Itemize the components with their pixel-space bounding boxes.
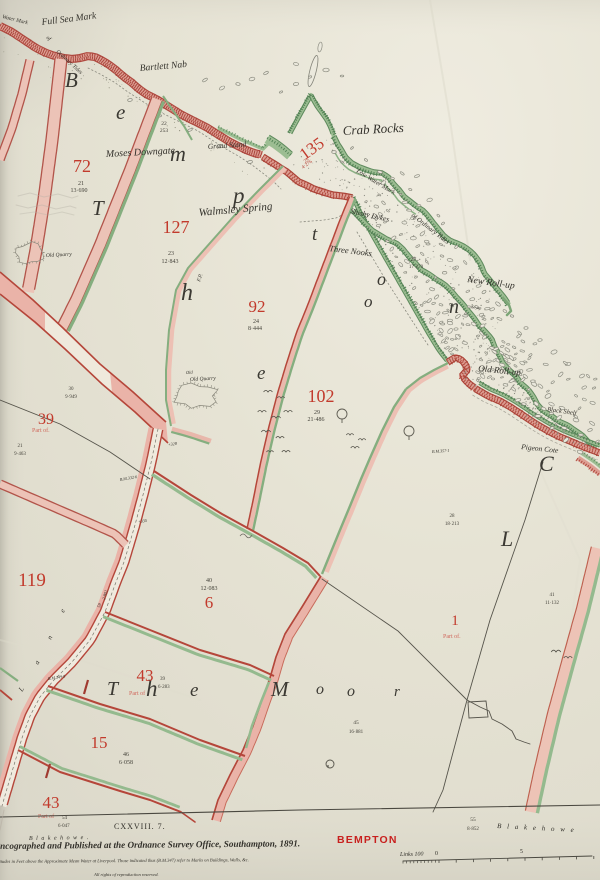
svg-text:8·852: 8·852 <box>467 827 479 832</box>
svg-text:1: 1 <box>451 613 459 629</box>
svg-text:h: h <box>181 280 193 306</box>
svg-text:o: o <box>377 269 386 289</box>
svg-text:6·047: 6·047 <box>58 824 70 829</box>
svg-text:12·843: 12·843 <box>162 259 179 265</box>
svg-text:n: n <box>449 296 459 318</box>
svg-text:All rights of reproduction res: All rights of reproduction reserved. <box>93 872 159 877</box>
svg-text:46: 46 <box>123 752 129 758</box>
svg-text:T: T <box>107 678 120 700</box>
svg-text:24: 24 <box>253 319 259 325</box>
svg-text:T: T <box>92 196 105 220</box>
svg-text:15: 15 <box>91 733 108 752</box>
svg-text:o: o <box>364 292 373 311</box>
svg-text:8·444: 8·444 <box>248 326 262 332</box>
svg-text:Links 100: Links 100 <box>399 852 424 858</box>
svg-text:CXXVIII. 7.: CXXVIII. 7. <box>114 822 166 831</box>
svg-text:102: 102 <box>308 386 335 406</box>
svg-text:21: 21 <box>18 444 24 449</box>
svg-text:6·058: 6·058 <box>119 760 133 766</box>
svg-text:30: 30 <box>69 387 75 392</box>
svg-text:12·083: 12·083 <box>201 586 218 592</box>
svg-text:17·270: 17·270 <box>409 265 424 270</box>
svg-text:39: 39 <box>38 411 54 428</box>
svg-text:23: 23 <box>168 251 174 257</box>
svg-text:5: 5 <box>520 849 523 855</box>
svg-text:0: 0 <box>435 851 438 857</box>
svg-text:9·949: 9·949 <box>65 395 77 400</box>
svg-text:127: 127 <box>163 217 190 237</box>
svg-text:22: 22 <box>161 121 167 127</box>
svg-text:t: t <box>312 224 318 245</box>
svg-text:45: 45 <box>353 720 359 726</box>
svg-text:43: 43 <box>137 666 154 685</box>
svg-text:13·690: 13·690 <box>71 188 88 194</box>
svg-text:21·486: 21·486 <box>308 417 325 423</box>
svg-text:16·881: 16·881 <box>349 730 364 735</box>
svg-text:72: 72 <box>73 156 91 176</box>
svg-text:C: C <box>539 451 554 476</box>
svg-text:e: e <box>190 680 198 701</box>
svg-text:253: 253 <box>160 128 169 134</box>
svg-text:6·283: 6·283 <box>158 685 170 690</box>
svg-text:r: r <box>394 684 400 700</box>
svg-text:40: 40 <box>206 578 212 584</box>
svg-text:o: o <box>316 681 324 698</box>
svg-text:39: 39 <box>160 677 166 682</box>
svg-text:21: 21 <box>78 181 84 187</box>
svg-text:B: B <box>65 68 78 92</box>
svg-text:m: m <box>170 141 186 166</box>
svg-text:29: 29 <box>314 410 320 416</box>
svg-text:119: 119 <box>18 570 46 591</box>
svg-text:L: L <box>500 526 513 551</box>
svg-text:e: e <box>116 100 125 124</box>
svg-text:Crab Rocks: Crab Rocks <box>342 120 404 138</box>
svg-text:o: o <box>347 683 355 700</box>
svg-text:92: 92 <box>249 297 266 316</box>
svg-text:6: 6 <box>205 593 214 612</box>
svg-text:43: 43 <box>43 793 60 812</box>
svg-text:p: p <box>231 183 245 208</box>
svg-text:9·463: 9·463 <box>14 452 26 457</box>
svg-text:55: 55 <box>470 817 476 823</box>
svg-text:11·132: 11·132 <box>545 601 559 606</box>
svg-text:Part of.: Part of. <box>443 633 461 640</box>
svg-text:18·213: 18·213 <box>445 522 460 527</box>
svg-text:25: 25 <box>411 258 417 263</box>
svg-text:Old: Old <box>186 370 194 375</box>
svg-text:54: 54 <box>62 816 68 821</box>
svg-text:28: 28 <box>450 514 456 519</box>
svg-text:M: M <box>270 677 290 701</box>
svg-text:e: e <box>257 363 265 384</box>
svg-text:BEMPTON: BEMPTON <box>337 834 398 846</box>
svg-text:Part of: Part of <box>129 690 145 697</box>
svg-text:41: 41 <box>550 593 556 598</box>
svg-text:Part of.: Part of. <box>32 427 50 434</box>
